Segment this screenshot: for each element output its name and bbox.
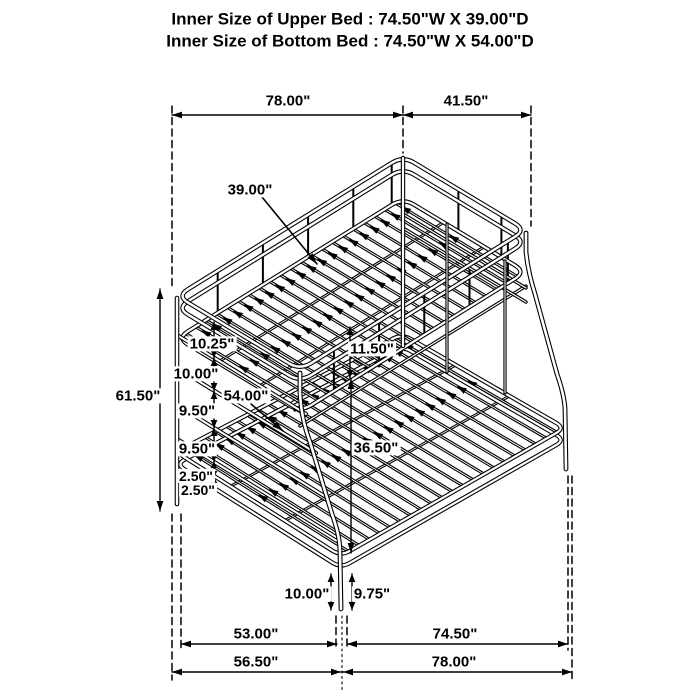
dim-rear-leg-height: 9.75": [352, 586, 392, 601]
dim-bottom-inner-width: 53.00": [232, 626, 281, 641]
dim-bottom-overall-length: 78.00": [430, 654, 479, 669]
dim-overall-height: 61.50": [114, 388, 163, 403]
dim-lower-inner-width: 54.00": [222, 388, 271, 403]
dim-bottom-inner-length: 74.50": [431, 626, 480, 641]
dim-front-leg-height: 10.00": [283, 586, 332, 601]
dim-rung-spacing-2: 10.00": [172, 366, 221, 381]
dim-upper-inner-width: 39.00": [226, 182, 275, 197]
dim-bunk-clearance: 36.50": [352, 440, 401, 455]
diagram-title-bottom-bed: Inner Size of Bottom Bed : 74.50"W X 54.…: [166, 32, 534, 49]
dim-rung-spacing-4: 9.50": [177, 441, 217, 456]
dim-frame-gap-2: 2.50": [179, 483, 217, 497]
dim-bottom-overall-width: 56.50": [232, 654, 281, 669]
dim-overall-width-top: 41.50": [442, 93, 491, 108]
diagram-title-upper-bed: Inner Size of Upper Bed : 74.50"W X 39.0…: [171, 10, 528, 27]
dim-guardrail-height: 11.50": [348, 341, 396, 356]
bunk-bed-dimension-diagram: Inner Size of Upper Bed : 74.50"W X 39.0…: [0, 0, 700, 700]
dim-overall-length-top: 78.00": [264, 93, 313, 108]
dim-rung-spacing-3: 9.50": [177, 403, 217, 418]
dim-rung-spacing-1: 10.25": [188, 336, 237, 351]
